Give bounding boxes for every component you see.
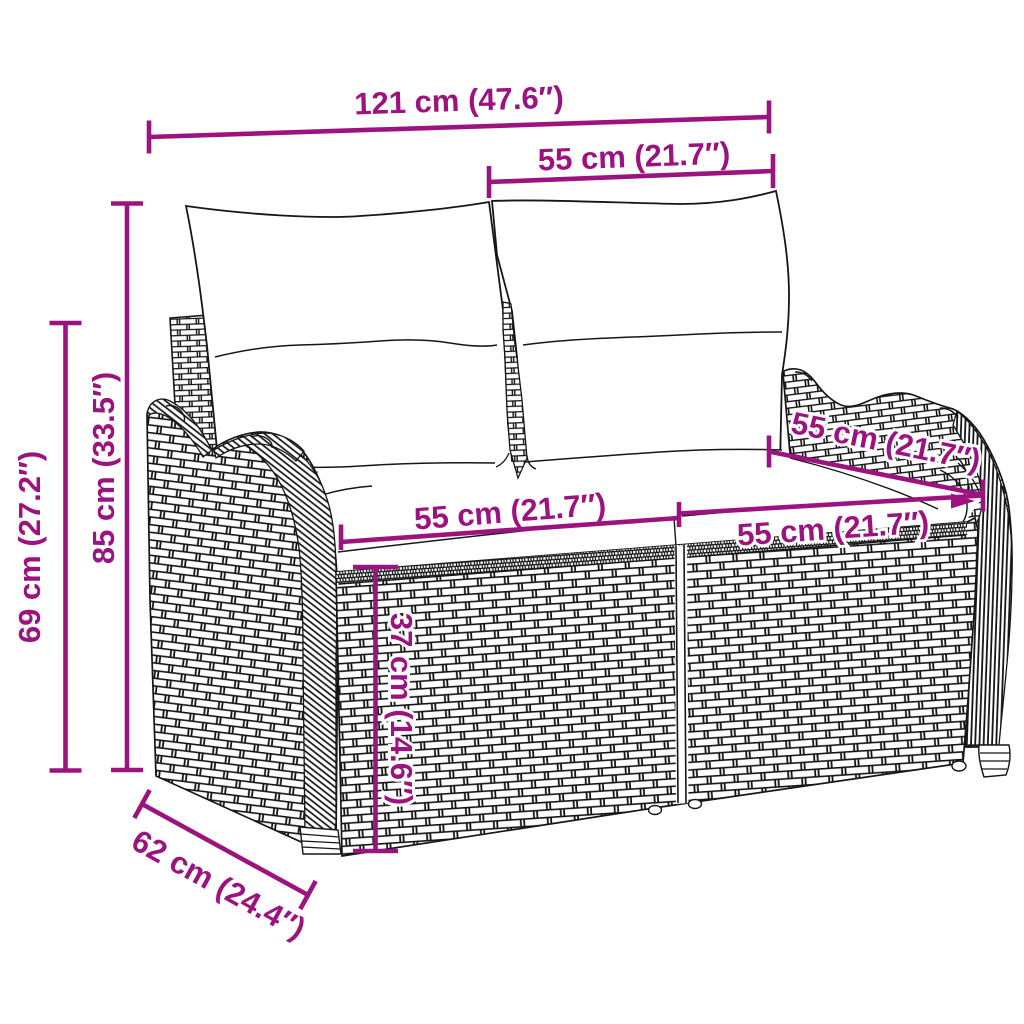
svg-text:85 cm (33.5″): 85 cm (33.5″) (86, 372, 121, 564)
svg-text:121 cm (47.6″): 121 cm (47.6″) (354, 80, 565, 122)
svg-text:69 cm (27.2″): 69 cm (27.2″) (12, 451, 47, 643)
svg-text:37 cm (14.6″): 37 cm (14.6″) (384, 613, 419, 805)
svg-text:55 cm (21.7″): 55 cm (21.7″) (537, 135, 730, 177)
